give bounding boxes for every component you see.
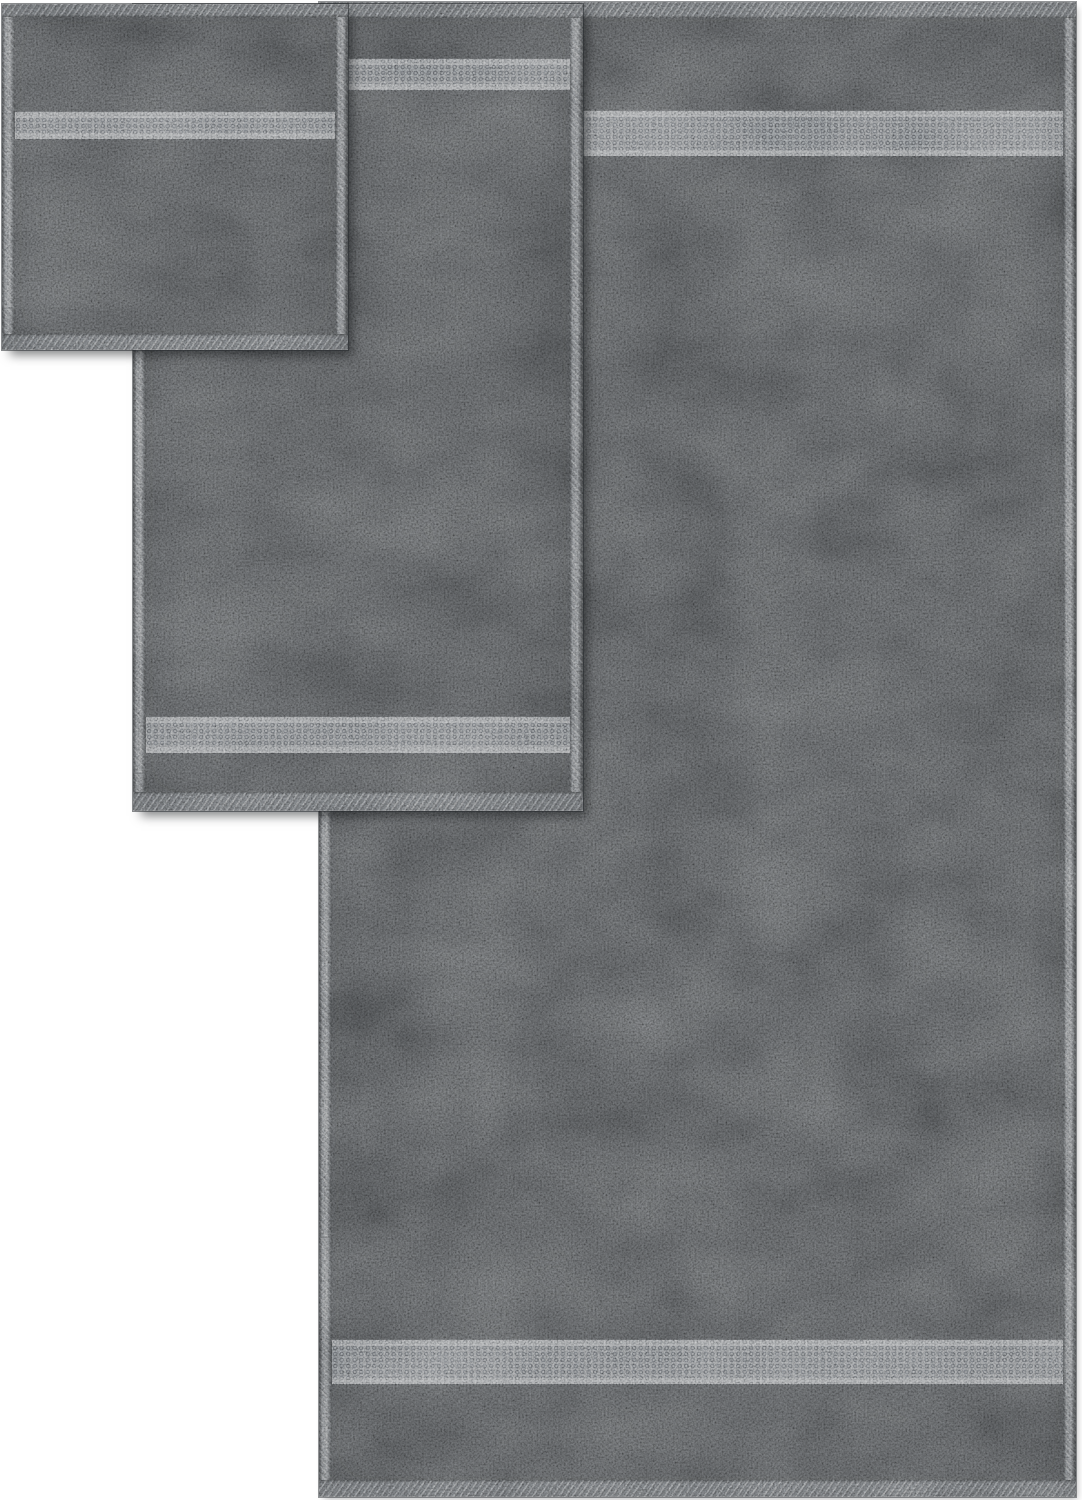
washcloth-edge-shading bbox=[2, 4, 348, 350]
product-photo-towel-set bbox=[0, 0, 1082, 1500]
washcloth bbox=[2, 4, 348, 350]
